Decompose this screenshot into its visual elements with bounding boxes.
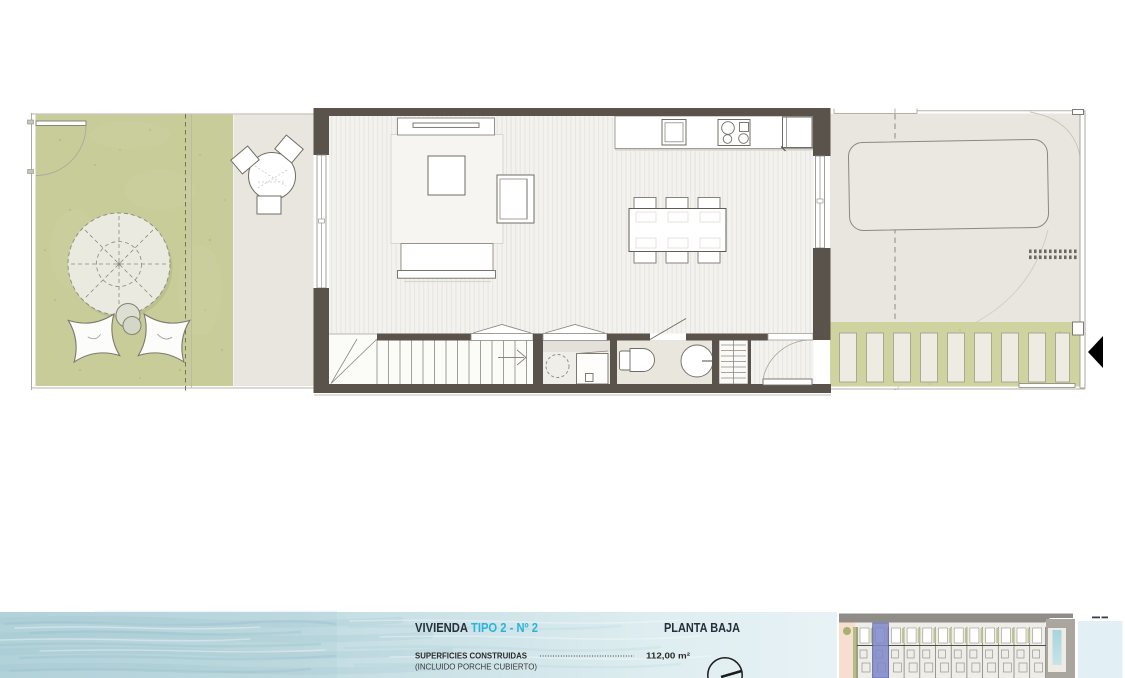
svg-text:VIVIENDA: VIVIENDA [415,620,468,635]
svg-text:PLANTA BAJA: PLANTA BAJA [664,620,740,635]
svg-text:SUPERFICIES CONSTRUIDAS: SUPERFICIES CONSTRUIDAS [415,652,528,661]
svg-text:112,00 m²: 112,00 m² [646,652,690,661]
svg-text:(INCLUIDO PORCHE CUBIERTO): (INCLUIDO PORCHE CUBIERTO) [415,663,537,672]
svg-text:TIPO 2 - Nº 2: TIPO 2 - Nº 2 [471,620,538,635]
